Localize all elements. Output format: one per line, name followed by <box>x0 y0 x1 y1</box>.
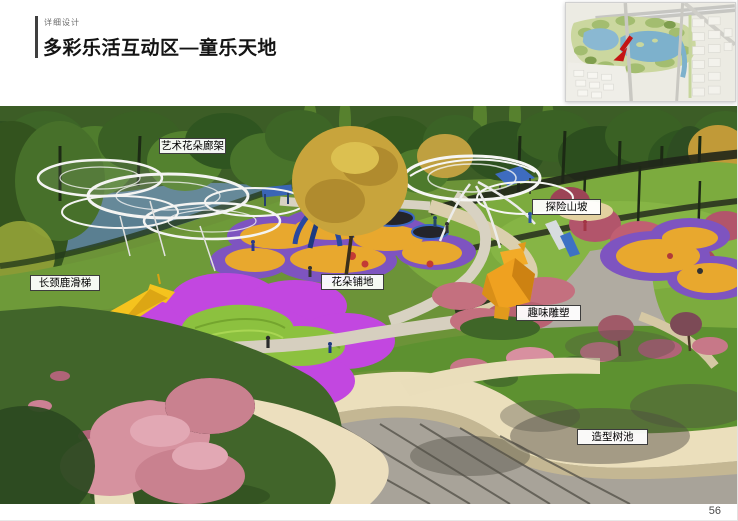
callout-art-flower-pergola: 艺术花朵廊架 <box>159 138 226 154</box>
page-number: 56 <box>709 505 721 517</box>
callout-shaped-tree-pool: 造型树池 <box>577 429 648 445</box>
locator-map-graphic <box>566 3 735 101</box>
slide: 详细设计 多彩乐活互动区—童乐天地 <box>0 0 738 521</box>
page-title: 多彩乐活互动区—童乐天地 <box>43 33 277 60</box>
callout-fun-sculpture: 趣味雕塑 <box>516 305 581 321</box>
eyebrow-label: 详细设计 <box>44 17 80 28</box>
callout-adventure-hill: 探险山坡 <box>532 199 601 215</box>
callout-giraffe-slide: 长颈鹿滑梯 <box>30 275 100 291</box>
accent-bar <box>35 16 38 58</box>
locator-map-thumbnail <box>565 2 736 102</box>
callout-flower-paving: 花朵铺地 <box>321 274 384 290</box>
